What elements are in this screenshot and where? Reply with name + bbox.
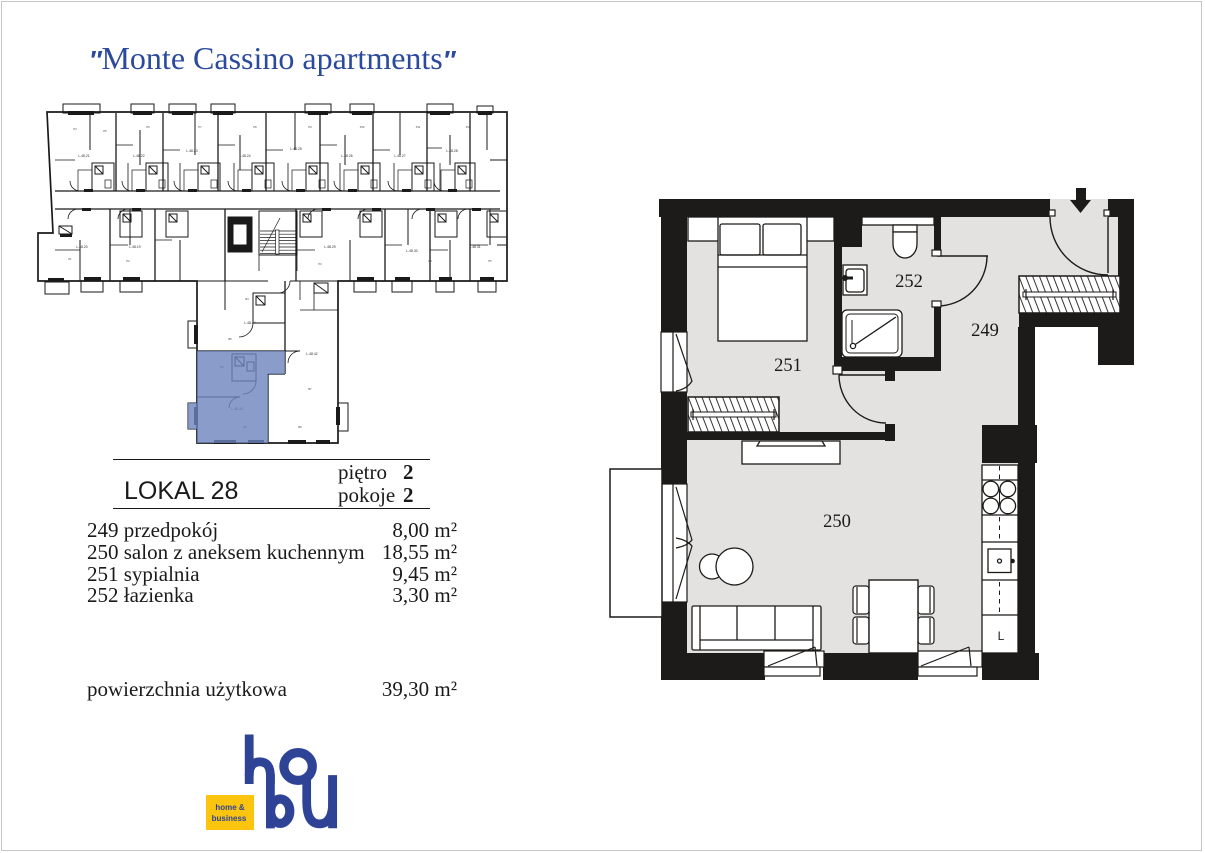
svg-text:B7: B7: [308, 387, 312, 391]
svg-text:L.48.27: L.48.27: [394, 154, 405, 158]
svg-text:P10: P10: [360, 125, 365, 129]
svg-text:L.48.31: L.48.31: [469, 245, 480, 249]
svg-text:L.48.21: L.48.21: [78, 154, 89, 158]
svg-text:P11: P11: [416, 125, 421, 129]
svg-text:250: 250: [823, 512, 851, 532]
svg-text:L.48.26: L.48.26: [341, 154, 352, 158]
svg-text:L.48.28: L.48.28: [446, 149, 457, 153]
svg-text:L.48.44: L.48.44: [244, 321, 255, 325]
svg-text:249: 249: [971, 321, 999, 341]
svg-text:P6: P6: [146, 125, 150, 129]
svg-text:L.48.25: L.48.25: [290, 147, 301, 151]
svg-text:P1: P1: [68, 257, 72, 261]
svg-text:L.48.23: L.48.23: [186, 149, 197, 153]
svg-text:B4: B4: [245, 297, 249, 301]
svg-text:P5: P5: [103, 129, 107, 133]
svg-text:251: 251: [774, 356, 802, 376]
svg-text:252: 252: [895, 272, 923, 292]
svg-text:B5: B5: [228, 337, 232, 341]
svg-text:P4: P4: [73, 127, 77, 131]
svg-text:business: business: [212, 814, 247, 823]
svg-text:B9: B9: [298, 425, 302, 429]
svg-text:L.48.30: L.48.30: [406, 249, 417, 253]
svg-text:P12: P12: [466, 125, 471, 129]
svg-text:P7: P7: [198, 125, 202, 129]
svg-text:P5: P5: [488, 259, 492, 263]
svg-text:L.48.19: L.48.19: [129, 245, 140, 249]
svg-text:L.48.24: L.48.24: [239, 154, 250, 158]
svg-text:P3: P3: [318, 262, 322, 266]
svg-text:L: L: [998, 629, 1005, 643]
svg-text:L.48.20: L.48.20: [76, 245, 87, 249]
svg-text:L.48.42: L.48.42: [306, 352, 317, 356]
svg-text:P9: P9: [308, 125, 312, 129]
svg-text:home &: home &: [215, 803, 245, 812]
svg-text:L.48.29: L.48.29: [324, 245, 335, 249]
svg-text:P8: P8: [253, 125, 257, 129]
svg-text:L.48.22: L.48.22: [133, 154, 144, 158]
svg-text:P4: P4: [428, 259, 432, 263]
svg-text:P2: P2: [126, 259, 130, 263]
